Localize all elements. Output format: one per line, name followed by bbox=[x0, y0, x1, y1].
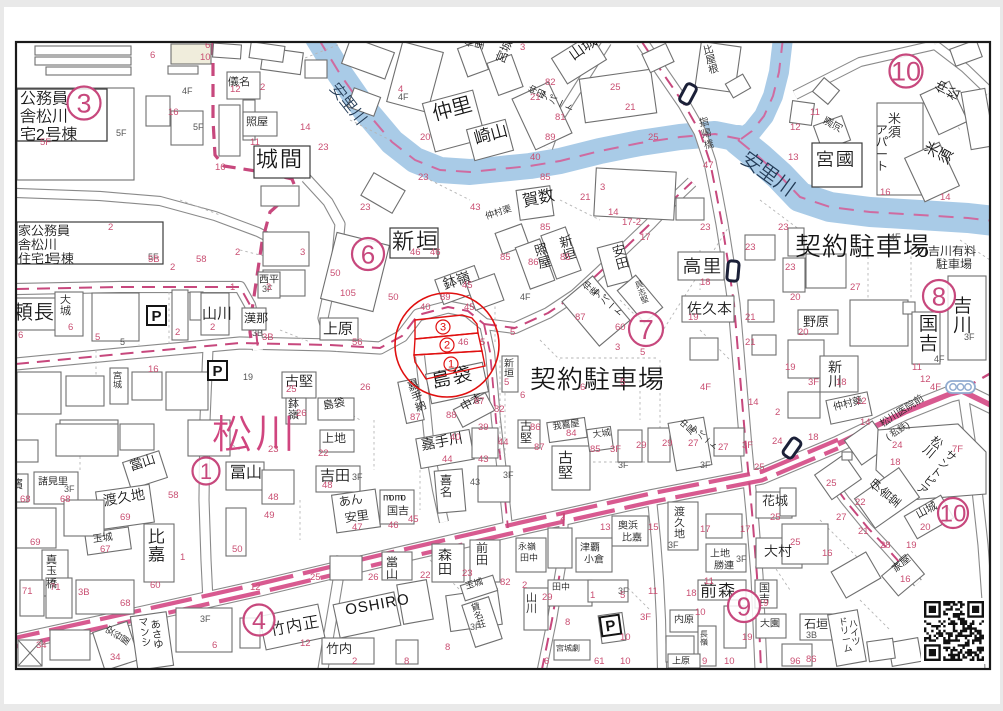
svg-text:10: 10 bbox=[620, 656, 631, 667]
svg-text:68: 68 bbox=[20, 494, 31, 505]
svg-text:P: P bbox=[212, 363, 222, 380]
svg-text:9: 9 bbox=[702, 656, 707, 667]
svg-text:12: 12 bbox=[230, 84, 241, 95]
svg-text:50: 50 bbox=[232, 544, 243, 555]
svg-text:10: 10 bbox=[695, 607, 706, 618]
svg-text:23: 23 bbox=[418, 172, 429, 183]
svg-text:10: 10 bbox=[620, 632, 631, 643]
svg-text:22: 22 bbox=[420, 570, 431, 581]
svg-text:2: 2 bbox=[444, 340, 450, 352]
svg-text:21: 21 bbox=[745, 312, 756, 323]
svg-text:20: 20 bbox=[420, 132, 431, 143]
svg-text:2: 2 bbox=[352, 656, 357, 667]
svg-text:25: 25 bbox=[754, 462, 765, 473]
svg-text:1: 1 bbox=[590, 590, 595, 601]
svg-text:3F: 3F bbox=[200, 614, 211, 624]
svg-text:6: 6 bbox=[212, 640, 217, 651]
svg-text:5: 5 bbox=[95, 332, 100, 343]
svg-text:3F: 3F bbox=[668, 540, 679, 550]
svg-text:16: 16 bbox=[168, 107, 179, 118]
svg-text:3F: 3F bbox=[808, 377, 819, 388]
svg-text:20: 20 bbox=[920, 522, 931, 533]
svg-text:26: 26 bbox=[360, 382, 371, 393]
svg-text:85: 85 bbox=[540, 222, 551, 233]
svg-text:19: 19 bbox=[906, 540, 917, 551]
svg-text:21: 21 bbox=[745, 337, 756, 348]
svg-text:86: 86 bbox=[530, 422, 541, 433]
svg-text:2: 2 bbox=[170, 262, 175, 273]
svg-text:48: 48 bbox=[322, 480, 333, 491]
svg-text:46: 46 bbox=[458, 337, 469, 348]
svg-text:10: 10 bbox=[724, 656, 735, 667]
svg-text:2: 2 bbox=[210, 322, 215, 333]
svg-text:P: P bbox=[151, 308, 161, 325]
svg-text:19: 19 bbox=[243, 372, 253, 382]
svg-text:4F: 4F bbox=[520, 292, 531, 302]
svg-text:25: 25 bbox=[310, 572, 321, 583]
svg-text:17-2: 17-2 bbox=[622, 217, 641, 228]
svg-text:85: 85 bbox=[560, 252, 571, 263]
svg-text:22: 22 bbox=[318, 448, 329, 459]
svg-text:5: 5 bbox=[620, 590, 625, 601]
svg-text:5F: 5F bbox=[193, 122, 204, 132]
svg-text:82: 82 bbox=[545, 77, 556, 88]
svg-text:21: 21 bbox=[625, 102, 636, 113]
svg-text:27: 27 bbox=[836, 512, 847, 523]
svg-text:25: 25 bbox=[770, 512, 781, 523]
svg-text:46: 46 bbox=[388, 520, 399, 531]
svg-text:82: 82 bbox=[500, 577, 511, 588]
svg-text:81: 81 bbox=[555, 112, 566, 123]
svg-text:21: 21 bbox=[858, 526, 869, 537]
svg-text:25: 25 bbox=[286, 384, 297, 395]
svg-text:85: 85 bbox=[540, 172, 551, 183]
svg-text:20: 20 bbox=[790, 292, 801, 303]
svg-text:7: 7 bbox=[638, 314, 654, 345]
svg-text:3F: 3F bbox=[470, 622, 481, 632]
svg-text:5B: 5B bbox=[148, 254, 160, 265]
svg-text:3: 3 bbox=[76, 89, 91, 119]
svg-text:2: 2 bbox=[235, 247, 240, 258]
svg-text:45: 45 bbox=[408, 514, 419, 525]
svg-text:2: 2 bbox=[260, 82, 265, 93]
svg-text:3F: 3F bbox=[618, 460, 629, 470]
svg-text:16: 16 bbox=[900, 574, 911, 585]
svg-text:3: 3 bbox=[440, 322, 446, 334]
svg-text:5: 5 bbox=[504, 377, 509, 388]
svg-text:3F: 3F bbox=[964, 332, 975, 342]
svg-text:14: 14 bbox=[940, 192, 951, 203]
svg-text:12: 12 bbox=[920, 374, 931, 385]
svg-text:18: 18 bbox=[700, 277, 711, 288]
svg-text:3B: 3B bbox=[806, 630, 817, 640]
svg-text:3F: 3F bbox=[503, 470, 514, 480]
svg-text:40: 40 bbox=[420, 302, 431, 313]
svg-text:10: 10 bbox=[940, 501, 967, 528]
svg-text:9: 9 bbox=[737, 591, 751, 621]
svg-text:3F: 3F bbox=[736, 554, 747, 564]
svg-text:6: 6 bbox=[580, 382, 585, 393]
svg-text:44: 44 bbox=[498, 437, 509, 448]
svg-text:43: 43 bbox=[470, 202, 481, 213]
svg-text:34: 34 bbox=[36, 640, 47, 651]
svg-text:43: 43 bbox=[478, 454, 489, 465]
svg-text:3B: 3B bbox=[78, 587, 90, 598]
svg-text:22: 22 bbox=[855, 497, 866, 508]
svg-text:87: 87 bbox=[575, 312, 586, 323]
svg-text:49: 49 bbox=[264, 510, 275, 521]
svg-text:3F: 3F bbox=[352, 472, 363, 482]
svg-text:50: 50 bbox=[330, 268, 341, 279]
svg-text:12: 12 bbox=[250, 582, 261, 593]
svg-text:48: 48 bbox=[268, 492, 279, 503]
svg-text:16: 16 bbox=[148, 364, 159, 375]
svg-text:3F: 3F bbox=[742, 440, 753, 451]
svg-text:23: 23 bbox=[745, 242, 756, 253]
svg-text:23: 23 bbox=[318, 142, 329, 153]
svg-text:11: 11 bbox=[912, 362, 922, 373]
svg-text:56: 56 bbox=[352, 337, 363, 348]
svg-text:87: 87 bbox=[474, 396, 485, 407]
svg-text:43: 43 bbox=[470, 477, 480, 487]
svg-text:40: 40 bbox=[530, 152, 541, 163]
svg-text:2: 2 bbox=[175, 327, 180, 338]
svg-text:11: 11 bbox=[810, 107, 820, 118]
svg-text:46: 46 bbox=[410, 247, 421, 258]
svg-text:2: 2 bbox=[775, 407, 780, 418]
svg-text:44: 44 bbox=[442, 454, 453, 465]
svg-text:105: 105 bbox=[340, 288, 356, 299]
svg-text:34: 34 bbox=[110, 652, 121, 663]
svg-text:12: 12 bbox=[790, 122, 801, 133]
svg-text:5F: 5F bbox=[40, 137, 51, 148]
svg-text:16: 16 bbox=[822, 548, 833, 559]
svg-text:8: 8 bbox=[445, 642, 450, 653]
svg-text:82: 82 bbox=[494, 404, 505, 415]
svg-text:3F: 3F bbox=[64, 484, 75, 494]
svg-text:5: 5 bbox=[120, 337, 125, 347]
svg-text:15: 15 bbox=[648, 522, 659, 533]
svg-text:2: 2 bbox=[108, 222, 113, 233]
svg-text:3: 3 bbox=[266, 282, 271, 293]
svg-text:71: 71 bbox=[50, 582, 61, 593]
svg-text:89: 89 bbox=[545, 132, 556, 143]
svg-text:29: 29 bbox=[662, 438, 673, 449]
svg-text:71: 71 bbox=[22, 586, 33, 597]
svg-text:24: 24 bbox=[772, 436, 783, 447]
svg-text:23: 23 bbox=[268, 444, 279, 455]
svg-text:o: o bbox=[400, 493, 406, 504]
svg-text:4F: 4F bbox=[700, 382, 711, 393]
svg-text:18: 18 bbox=[686, 588, 697, 599]
svg-text:3B: 3B bbox=[262, 332, 274, 343]
svg-text:1: 1 bbox=[180, 552, 185, 563]
svg-text:69: 69 bbox=[120, 512, 131, 523]
svg-text:1: 1 bbox=[200, 459, 212, 484]
svg-text:7F: 7F bbox=[952, 444, 963, 455]
svg-text:18: 18 bbox=[836, 377, 847, 388]
svg-text:28: 28 bbox=[880, 540, 891, 551]
svg-text:3F: 3F bbox=[640, 612, 651, 623]
svg-text:5: 5 bbox=[510, 327, 515, 338]
svg-text:17: 17 bbox=[640, 232, 651, 243]
svg-text:14: 14 bbox=[300, 122, 311, 133]
svg-text:10: 10 bbox=[891, 57, 921, 87]
svg-text:26: 26 bbox=[296, 408, 307, 419]
svg-text:68: 68 bbox=[120, 598, 131, 609]
svg-text:26: 26 bbox=[368, 572, 379, 583]
svg-text:29: 29 bbox=[636, 440, 647, 451]
svg-text:4: 4 bbox=[398, 84, 403, 95]
svg-text:61: 61 bbox=[594, 656, 605, 667]
svg-text:24: 24 bbox=[892, 440, 903, 451]
svg-text:45: 45 bbox=[464, 302, 475, 313]
svg-text:23: 23 bbox=[360, 202, 371, 213]
svg-text:86: 86 bbox=[806, 654, 817, 665]
svg-text:18: 18 bbox=[808, 432, 819, 443]
svg-text:8: 8 bbox=[932, 281, 946, 311]
svg-text:17: 17 bbox=[740, 524, 751, 535]
svg-text:6: 6 bbox=[361, 239, 375, 269]
svg-text:60: 60 bbox=[150, 580, 161, 591]
svg-text:88: 88 bbox=[446, 410, 457, 421]
svg-text:27: 27 bbox=[718, 442, 729, 453]
svg-text:86: 86 bbox=[528, 257, 539, 268]
svg-text:23: 23 bbox=[785, 262, 796, 273]
svg-text:1: 1 bbox=[448, 359, 454, 371]
svg-text:29: 29 bbox=[542, 592, 553, 603]
svg-text:27: 27 bbox=[850, 282, 861, 293]
svg-text:4F: 4F bbox=[890, 232, 901, 242]
svg-text:5: 5 bbox=[640, 347, 645, 358]
svg-text:6: 6 bbox=[150, 50, 155, 61]
svg-text:85: 85 bbox=[590, 444, 601, 455]
svg-text:17: 17 bbox=[700, 524, 711, 535]
svg-text:25: 25 bbox=[790, 537, 801, 548]
svg-text:23: 23 bbox=[700, 222, 711, 233]
svg-text:12: 12 bbox=[856, 396, 867, 407]
svg-text:8: 8 bbox=[404, 656, 409, 667]
svg-text:58: 58 bbox=[196, 254, 207, 265]
svg-text:11: 11 bbox=[704, 576, 714, 587]
svg-text:13: 13 bbox=[788, 152, 799, 163]
svg-text:25: 25 bbox=[648, 132, 659, 143]
svg-text:5F: 5F bbox=[116, 128, 127, 138]
svg-text:4F: 4F bbox=[934, 354, 945, 364]
svg-text:85: 85 bbox=[500, 252, 511, 263]
svg-text:60: 60 bbox=[615, 322, 626, 333]
svg-text:25: 25 bbox=[826, 478, 837, 489]
svg-text:3: 3 bbox=[615, 342, 620, 353]
svg-text:19: 19 bbox=[688, 312, 699, 323]
svg-text:3F: 3F bbox=[700, 460, 711, 470]
svg-text:16: 16 bbox=[880, 187, 891, 198]
svg-text:12: 12 bbox=[300, 638, 311, 649]
svg-text:6: 6 bbox=[520, 390, 525, 401]
svg-text:18: 18 bbox=[890, 457, 901, 468]
svg-text:11: 11 bbox=[648, 586, 658, 597]
svg-text:47: 47 bbox=[352, 522, 363, 533]
svg-text:87: 87 bbox=[534, 442, 545, 453]
svg-text:25: 25 bbox=[610, 82, 621, 93]
svg-text:8: 8 bbox=[565, 617, 570, 628]
svg-text:67: 67 bbox=[100, 544, 111, 555]
svg-text:14: 14 bbox=[860, 417, 871, 428]
svg-text:2: 2 bbox=[522, 580, 527, 591]
svg-text:3: 3 bbox=[300, 247, 305, 258]
svg-text:23: 23 bbox=[462, 568, 473, 579]
svg-text:23: 23 bbox=[778, 222, 789, 233]
svg-text:19: 19 bbox=[742, 632, 753, 643]
svg-text:68: 68 bbox=[60, 494, 71, 505]
svg-text:39: 39 bbox=[478, 422, 489, 433]
svg-text:13: 13 bbox=[600, 522, 611, 533]
svg-text:47: 47 bbox=[703, 160, 714, 171]
svg-text:14: 14 bbox=[748, 397, 759, 408]
svg-text:84: 84 bbox=[566, 428, 577, 439]
svg-text:6: 6 bbox=[18, 330, 23, 341]
svg-text:50: 50 bbox=[388, 292, 399, 303]
svg-text:6: 6 bbox=[68, 322, 73, 333]
svg-text:21: 21 bbox=[580, 192, 591, 203]
svg-text:45: 45 bbox=[462, 280, 473, 291]
svg-text:10: 10 bbox=[200, 52, 211, 63]
svg-text:4F: 4F bbox=[930, 382, 941, 393]
svg-text:20: 20 bbox=[798, 327, 809, 338]
svg-text:11: 11 bbox=[250, 137, 260, 148]
svg-text:2: 2 bbox=[560, 512, 565, 523]
svg-text:40: 40 bbox=[450, 432, 461, 443]
svg-text:19: 19 bbox=[785, 362, 796, 373]
svg-text:87: 87 bbox=[410, 412, 421, 423]
svg-text:96: 96 bbox=[790, 656, 801, 667]
svg-text:46: 46 bbox=[430, 247, 441, 258]
svg-text:69: 69 bbox=[30, 537, 41, 548]
svg-text:6: 6 bbox=[544, 656, 549, 667]
svg-text:1: 1 bbox=[230, 282, 235, 293]
svg-text:4F: 4F bbox=[182, 86, 193, 96]
svg-text:3: 3 bbox=[520, 42, 525, 53]
svg-text:3: 3 bbox=[600, 182, 605, 193]
svg-text:21: 21 bbox=[530, 92, 541, 103]
svg-text:16: 16 bbox=[215, 162, 226, 173]
svg-text:27: 27 bbox=[688, 438, 699, 449]
svg-text:14: 14 bbox=[608, 207, 619, 218]
svg-text:3F: 3F bbox=[610, 444, 621, 455]
svg-text:58: 58 bbox=[168, 490, 179, 501]
svg-text:5: 5 bbox=[620, 377, 625, 388]
svg-text:4: 4 bbox=[252, 607, 266, 635]
